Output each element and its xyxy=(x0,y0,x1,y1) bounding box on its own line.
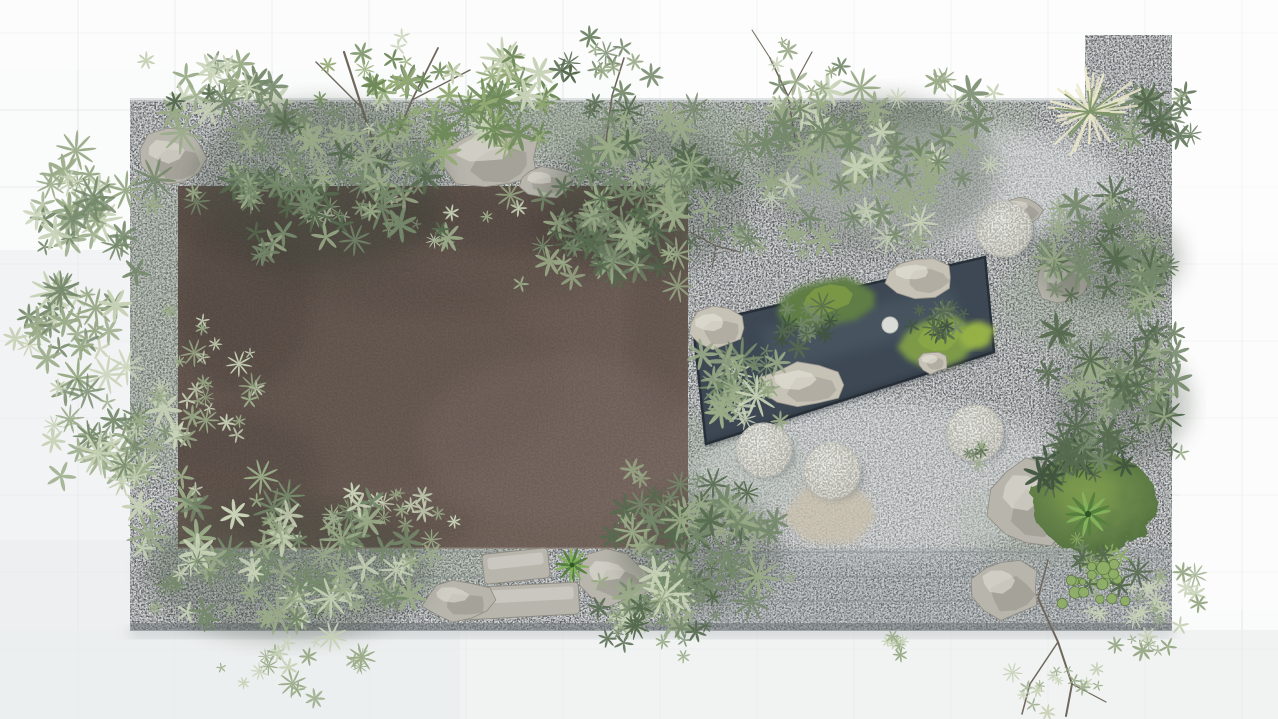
garden-scene-canvas xyxy=(0,0,1278,719)
granite-slab-short xyxy=(482,548,551,585)
pond-stepping-stone xyxy=(882,317,898,333)
garden-rendering: Top-down 3D rendering of a rectangular c… xyxy=(0,0,1278,719)
